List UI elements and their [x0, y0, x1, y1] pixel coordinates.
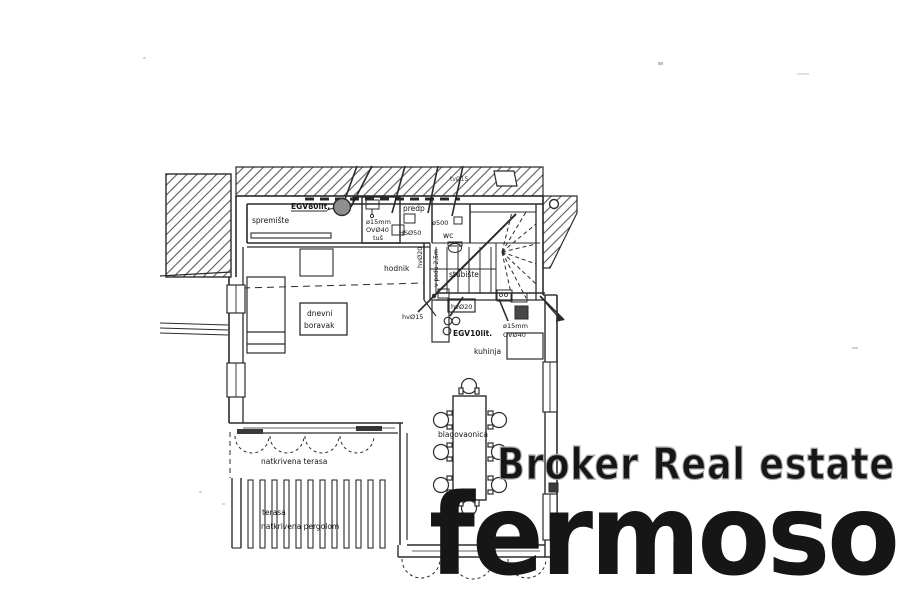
label-wc: wc	[443, 231, 453, 240]
living-room-label-box	[300, 303, 347, 335]
floor-plan-drawing: tvØ15 EGV80lit. spremište ø15mm OVØ40 tu…	[0, 0, 900, 600]
label-terasa: terasa	[262, 508, 286, 517]
label-boravak: boravak	[304, 321, 335, 330]
label-shower-drain: OVØ40	[366, 226, 389, 234]
label-hs50: HSØ50	[399, 229, 421, 237]
label-dnevni: dnevni	[307, 309, 332, 318]
toilet-symbol	[449, 244, 462, 253]
label-tv15: tvØ15	[450, 176, 468, 183]
scanned-floor-plan-page: tvØ15 EGV80lit. spremište ø15mm OVØ40 tu…	[0, 0, 900, 600]
sink-symbol	[515, 306, 528, 319]
label-predp: predp	[403, 204, 425, 213]
label-kitchen-pipe: ø15mm	[503, 322, 528, 330]
column-symbol	[550, 200, 559, 209]
chimney-block	[494, 171, 517, 186]
scan-artifacts	[143, 57, 858, 505]
counter	[432, 300, 449, 342]
label-hodnik: hodnik	[384, 264, 410, 273]
door-leaf	[424, 300, 436, 316]
label-stubiste: stubište	[449, 270, 479, 279]
living-room-furniture	[227, 277, 347, 397]
label-shower-pipe: ø15mm	[366, 218, 391, 226]
label-hv20-box: hvØ20	[451, 303, 472, 311]
chair	[459, 379, 479, 395]
door-threshold	[356, 426, 382, 431]
label-o500: ø500	[432, 219, 448, 227]
folding-door-arcs	[235, 436, 374, 453]
label-egv80: EGV80lit.	[291, 202, 330, 211]
label-kuhinja: kuhinja	[474, 347, 501, 356]
pergola-terrace	[232, 478, 385, 548]
label-natkrivena-pergolom: natkrivena pergolom	[261, 522, 339, 531]
covered-terrace	[230, 426, 395, 478]
chair	[488, 411, 507, 429]
door-threshold	[237, 429, 263, 434]
label-natkrivena-terasa: natkrivena terasa	[261, 457, 327, 466]
label-egv10: EGV10lit.	[453, 329, 492, 338]
chair	[434, 443, 453, 461]
corridor-dashed-line	[243, 283, 424, 288]
label-shower: tuš	[373, 234, 384, 242]
label-v-podu: v podu 2,5m	[433, 249, 440, 287]
label-kitchen-drain: OVØ40	[503, 331, 526, 339]
chair	[434, 411, 453, 429]
winder-treads	[502, 212, 536, 298]
label-hv15: hvØ15	[402, 313, 423, 321]
neighbor-building-hatch	[160, 174, 231, 335]
watermark-fermoso-logo: fermoso	[429, 471, 897, 600]
label-hv20-vertical: hvØ20	[416, 247, 424, 268]
label-spremiste: spremište	[252, 216, 289, 225]
staircase	[424, 196, 543, 300]
label-blagovaonica: blagovaonica	[438, 430, 488, 439]
